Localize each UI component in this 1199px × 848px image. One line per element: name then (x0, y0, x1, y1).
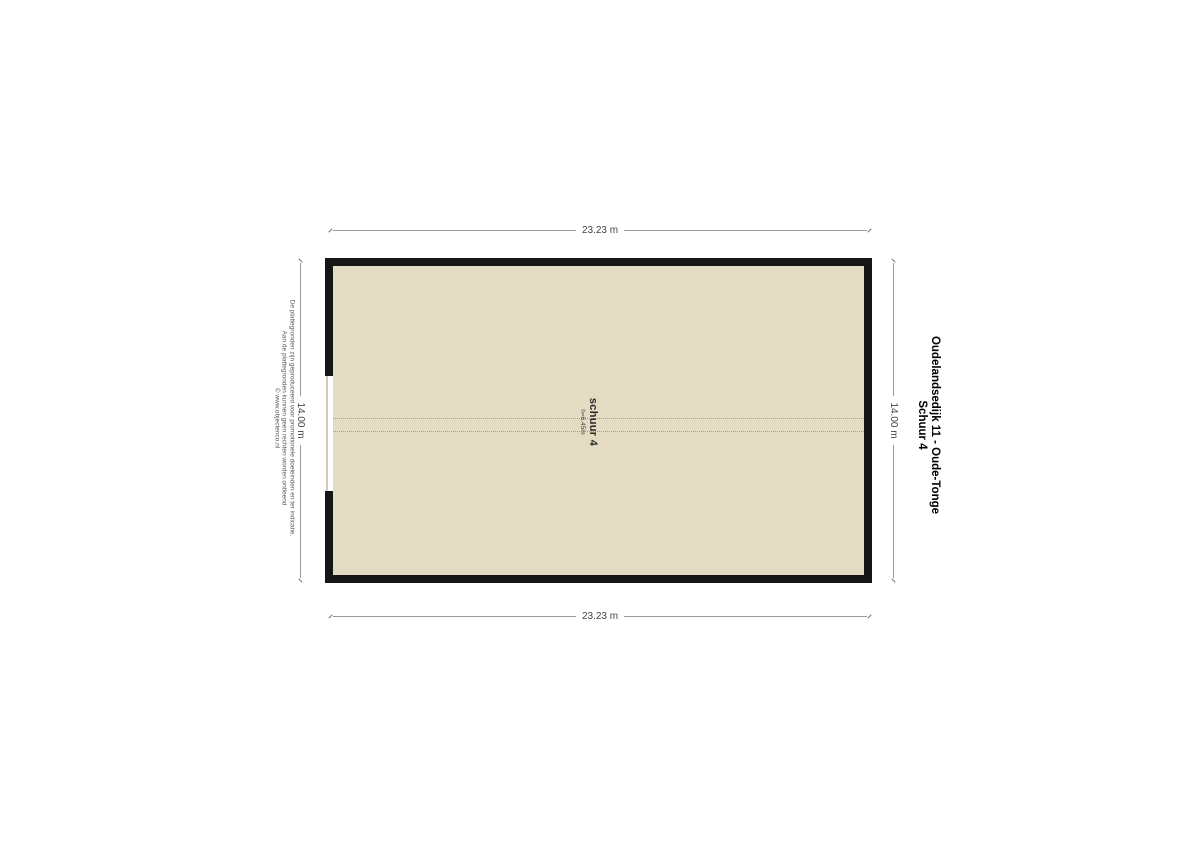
dimension-left: 14.00 m (294, 258, 307, 583)
dimension-right: 14.00 m (887, 258, 900, 583)
dimension-line (300, 445, 301, 578)
plan-title-floor: Schuur 4 (915, 336, 928, 514)
dimension-tick (328, 614, 332, 618)
dimension-label-left: 14.00 m (294, 396, 307, 444)
dimension-line (333, 230, 576, 231)
plan-title: Oudelandsedijk 11 - Oude-Tonge Schuur 4 (915, 336, 941, 514)
dimension-line (893, 445, 894, 578)
dimension-label-top: 23.23 m (576, 224, 624, 237)
disclaimer-line: De plattegronden zijn geproduceerd voor … (288, 300, 296, 537)
dimension-line (624, 230, 867, 231)
dimension-tick (867, 614, 871, 618)
dimension-tick (298, 578, 302, 582)
disclaimer-copyright: © www.objectenco.nl (273, 300, 281, 537)
dimension-line (300, 263, 301, 396)
dimension-tick (867, 228, 871, 232)
dimension-top: 23.23 m (328, 224, 872, 237)
floorplan-page: 23.23 m 23.23 m 14.00 m 14.00 m schuu (0, 0, 1199, 848)
dimension-label-bottom: 23.23 m (576, 610, 624, 623)
dimension-tick (891, 578, 895, 582)
dimension-tick (298, 258, 302, 262)
room-name: schuur 4 (587, 398, 599, 446)
dimension-label-right: 14.00 m (887, 396, 900, 444)
wall-opening-line (326, 376, 328, 491)
dimension-line (893, 263, 894, 396)
dimension-tick (328, 228, 332, 232)
dimension-line (333, 616, 576, 617)
plan-title-address: Oudelandsedijk 11 - Oude-Tonge (928, 336, 941, 514)
dimension-tick (891, 258, 895, 262)
dimension-bottom: 23.23 m (328, 610, 872, 623)
wall-opening (325, 376, 333, 491)
room-label: schuur 4 h=6.45m (579, 398, 599, 446)
room-height-note: h=6.45m (579, 398, 586, 446)
dimension-line (624, 616, 867, 617)
disclaimer: De plattegronden zijn geproduceerd voor … (273, 300, 296, 537)
disclaimer-line: Aan de plattegronden kunnen geen rechten… (280, 300, 288, 537)
